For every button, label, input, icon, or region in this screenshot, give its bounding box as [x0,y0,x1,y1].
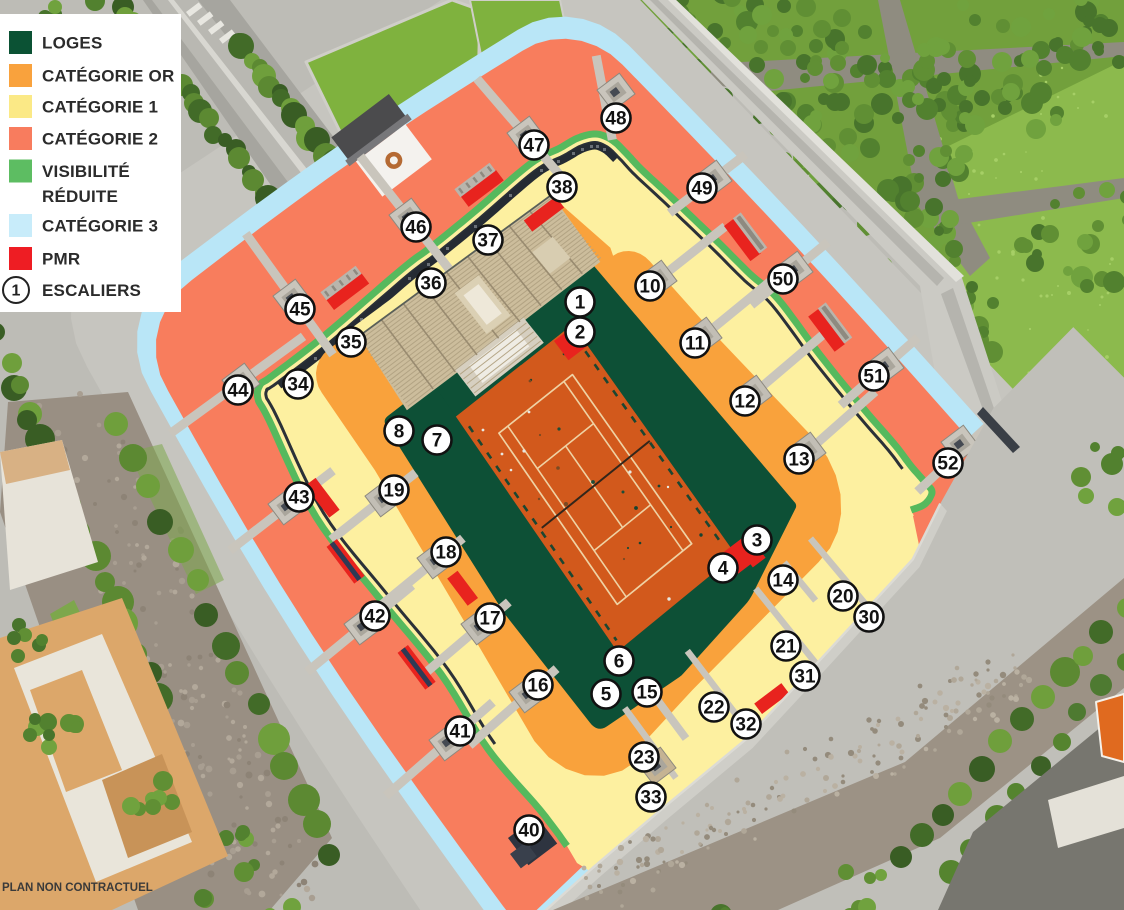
svg-text:36: 36 [420,274,441,295]
svg-text:1: 1 [575,293,586,314]
svg-text:49: 49 [691,179,712,200]
svg-text:19: 19 [383,481,404,502]
svg-text:32: 32 [735,715,756,736]
svg-text:38: 38 [551,178,572,199]
svg-text:8: 8 [394,422,405,443]
svg-text:RÉDUITE: RÉDUITE [42,187,118,206]
svg-text:31: 31 [794,667,816,688]
svg-text:35: 35 [340,333,362,354]
svg-text:14: 14 [772,571,794,592]
svg-text:20: 20 [832,587,853,608]
svg-text:10: 10 [639,277,660,298]
svg-text:5: 5 [601,685,612,706]
svg-text:41: 41 [449,722,471,743]
svg-text:PMR: PMR [42,250,80,269]
svg-text:11: 11 [685,334,706,355]
svg-text:VISIBILITÉ: VISIBILITÉ [42,162,130,181]
svg-text:CATÉGORIE 3: CATÉGORIE 3 [42,217,158,236]
svg-text:18: 18 [435,543,456,564]
svg-text:42: 42 [364,607,385,628]
svg-text:CATÉGORIE OR: CATÉGORIE OR [42,67,174,86]
svg-text:51: 51 [863,367,885,388]
svg-text:3: 3 [752,531,763,552]
svg-text:1: 1 [12,283,21,300]
svg-text:PLAN NON CONTRACTUEL: PLAN NON CONTRACTUEL [2,882,153,894]
svg-text:4: 4 [718,559,729,580]
svg-text:16: 16 [527,676,548,697]
svg-text:17: 17 [479,609,500,630]
svg-text:13: 13 [788,450,809,471]
svg-text:37: 37 [477,231,498,252]
svg-text:22: 22 [703,698,724,719]
svg-text:43: 43 [288,488,309,509]
svg-text:ESCALIERS: ESCALIERS [42,281,141,300]
svg-text:44: 44 [227,381,249,402]
svg-text:21: 21 [775,637,797,658]
svg-text:LOGES: LOGES [42,34,103,53]
svg-text:34: 34 [287,375,309,396]
svg-text:48: 48 [605,109,626,130]
svg-text:2: 2 [575,323,586,344]
svg-text:12: 12 [734,392,755,413]
svg-text:CATÉGORIE 2: CATÉGORIE 2 [42,130,158,149]
svg-text:30: 30 [858,608,879,629]
svg-text:7: 7 [432,431,443,452]
svg-text:52: 52 [937,454,958,475]
svg-text:33: 33 [640,788,661,809]
svg-text:45: 45 [289,300,311,321]
svg-text:15: 15 [636,683,658,704]
svg-text:47: 47 [523,136,544,157]
svg-text:6: 6 [614,652,625,673]
svg-text:23: 23 [633,748,654,769]
svg-text:CATÉGORIE 1: CATÉGORIE 1 [42,98,158,117]
svg-text:46: 46 [405,218,426,239]
svg-text:40: 40 [518,821,539,842]
svg-text:50: 50 [772,270,793,291]
